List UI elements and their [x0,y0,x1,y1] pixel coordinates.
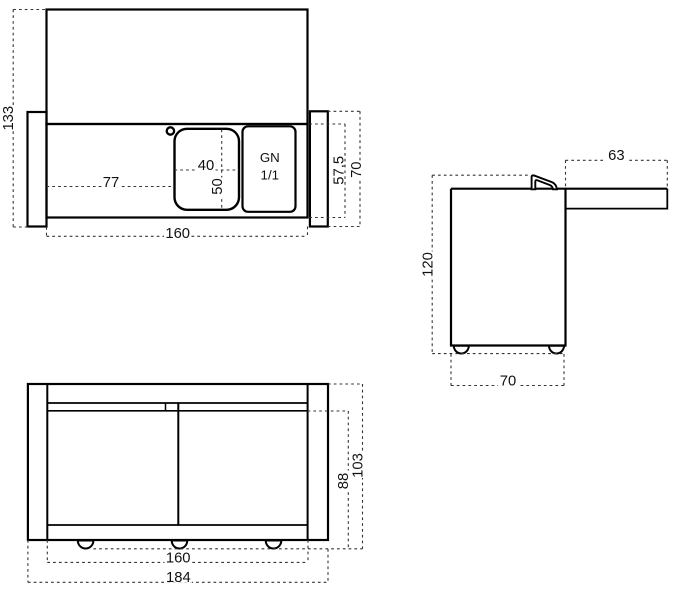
svg-text:160: 160 [165,226,190,242]
svg-text:1/1: 1/1 [261,168,280,183]
svg-text:40: 40 [198,158,214,174]
svg-text:120: 120 [420,252,436,277]
svg-text:GN: GN [260,150,280,165]
svg-text:50: 50 [210,178,226,194]
svg-text:70: 70 [500,374,516,390]
svg-text:77: 77 [103,175,119,191]
svg-text:57,5: 57,5 [332,156,348,185]
svg-text:70: 70 [349,161,365,177]
svg-text:160: 160 [166,550,191,566]
svg-text:103: 103 [350,453,366,478]
svg-text:184: 184 [166,570,191,586]
svg-text:133: 133 [1,106,17,131]
svg-text:63: 63 [608,148,624,164]
